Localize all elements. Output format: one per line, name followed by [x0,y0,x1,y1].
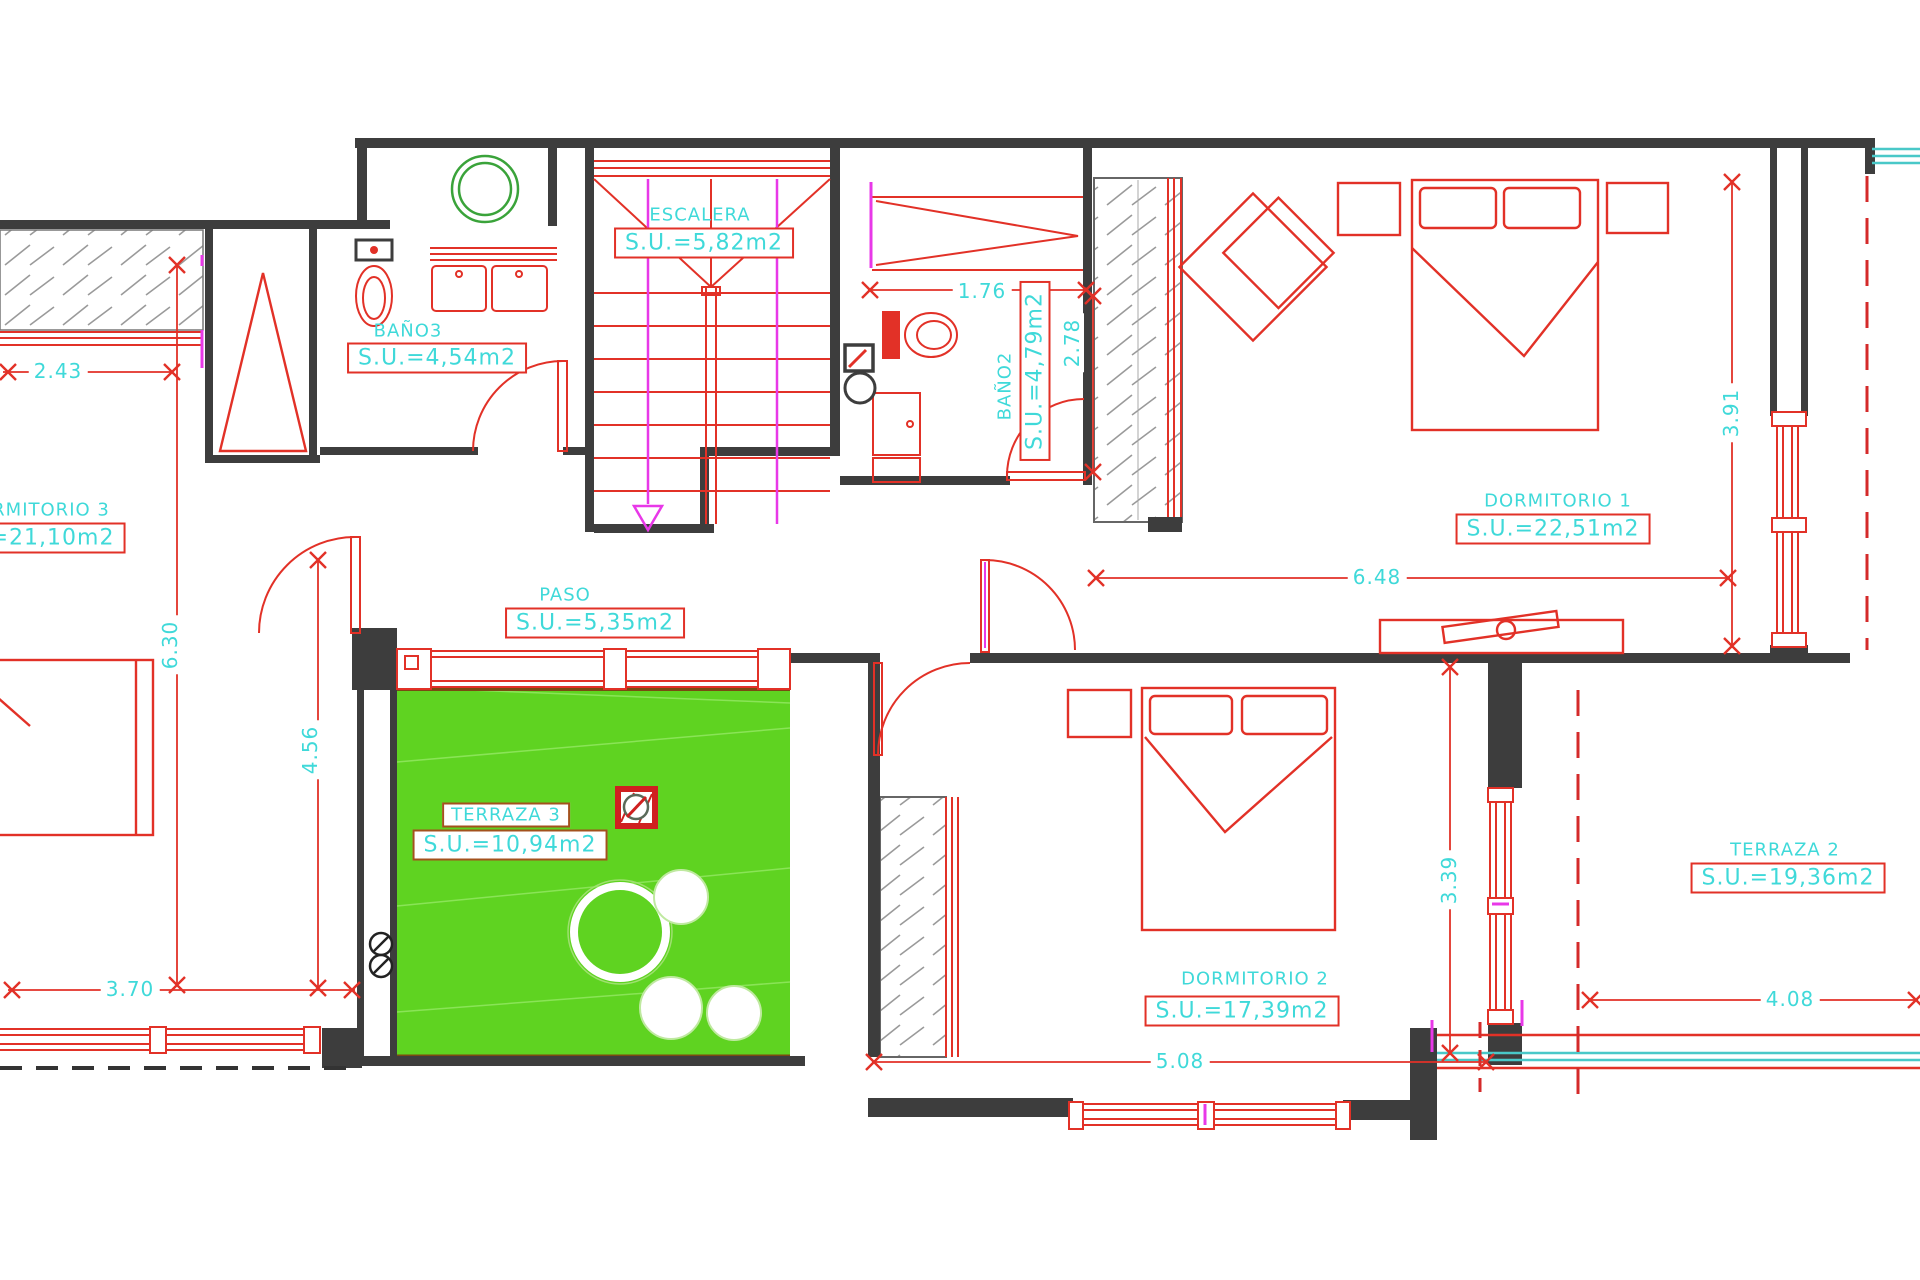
room-area-terraza3: S.U.=10,94m2 [413,830,608,861]
bathroom3-fixtures [356,240,557,326]
dim-5-08: 5.08 [1151,1049,1210,1073]
dim-2-78: 2.78 [1060,314,1084,373]
room-area-terraza2: S.U.=19,36m2 [1691,863,1886,894]
downpipe-icon [370,933,392,977]
dorm2-furniture [1068,688,1335,930]
dimension-lines [3,180,1918,1062]
dim-2-43: 2.43 [29,359,88,383]
room-name-escalera: ESCALERA [649,205,750,226]
room-name-terraza3: TERRAZA 3 [442,803,570,828]
dimension-ticks [0,174,1920,1070]
dim-3-70: 3.70 [101,977,160,1001]
room-area-dormitorio3: S.U.=21,10m2 [0,523,125,554]
dim-6-30: 6.30 [158,616,182,675]
room-area-paso: S.U.=5,35m2 [505,608,685,639]
floor-plan: ESCALERA S.U.=5,82m2 BAÑO3 S.U.=4,54m2 B… [0,0,1920,1280]
wardrobe-dorm1 [1094,178,1182,532]
dorm1-furniture [1179,180,1668,653]
room-name-dormitorio1: DORMITORIO 1 [1484,491,1632,512]
room-name-dormitorio2: DORMITORIO 2 [1181,969,1329,990]
dim-6-48: 6.48 [1348,565,1407,589]
room-area-dormitorio2: S.U.=17,39m2 [1145,996,1340,1027]
room-name-bano2: BAÑO2 [995,352,1016,421]
dim-4-56: 4.56 [298,721,322,780]
dorm3-furniture [0,273,306,835]
cyan-windows [1437,149,1920,1060]
dim-4-08: 4.08 [1761,987,1820,1011]
wardrobe-dorm3 [0,230,203,345]
dim-3-91: 3.91 [1719,384,1743,443]
room-area-bano2: S.U.=4,79m2 [1020,281,1051,461]
boiler-icon [845,345,875,403]
room-name-terraza2: TERRAZA 2 [1730,840,1840,861]
bathroom2-fixtures [872,197,1083,482]
washing-machine-icon [452,156,518,222]
wardrobe-dorm2 [880,797,958,1057]
room-name-bano3: BAÑO3 [374,321,443,342]
dim-3-39: 3.39 [1437,851,1461,910]
room-name-paso: PASO [539,585,591,606]
room-name-dormitorio3: DORMITORIO 3 [0,500,110,521]
room-area-escalera: S.U.=5,82m2 [614,228,794,259]
room-area-dormitorio1: S.U.=22,51m2 [1456,514,1651,545]
floor-plan-drawing [0,0,1920,1280]
room-area-bano3: S.U.=4,54m2 [347,343,527,374]
drain-icon [618,789,655,826]
dim-1-76: 1.76 [953,279,1012,303]
